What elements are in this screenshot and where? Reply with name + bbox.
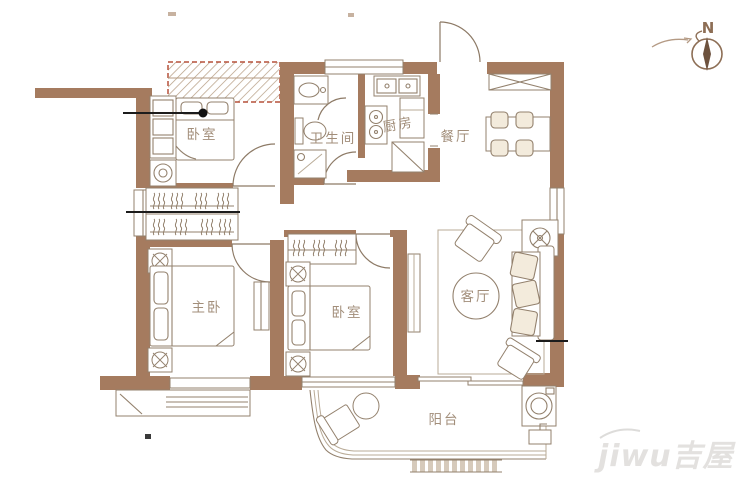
- dresser: [254, 282, 269, 330]
- hatched-area: [168, 62, 280, 102]
- floor-plan-page: 卧室 卫生间 厨房 餐厅 主卧 卧室 客厅 阳台 N jiwu吉屋: [0, 0, 740, 493]
- window-bedroom-middle: [302, 377, 395, 387]
- balcony-table: [353, 393, 379, 419]
- bathroom-fixtures: [294, 76, 328, 178]
- top-tick-mark: [168, 12, 176, 16]
- watermark: jiwu吉屋: [594, 430, 737, 474]
- balcony-items: [310, 386, 556, 472]
- room-label-living-room: 客厅: [461, 288, 492, 305]
- compass: N: [652, 19, 722, 71]
- sliding-door-balcony: [418, 377, 523, 385]
- sink: [294, 76, 328, 104]
- wardrobe: [288, 234, 356, 264]
- north-label: N: [702, 19, 715, 37]
- dining-table: [486, 112, 550, 156]
- floor-plan: 卧室 卫生间 厨房 餐厅 主卧 卧室 客厅 阳台 N jiwu吉屋: [0, 0, 740, 493]
- compass-needle: [703, 37, 711, 71]
- top-tick-mark: [348, 13, 354, 17]
- nightstand: [286, 352, 310, 376]
- washing-machine: [522, 386, 556, 426]
- room-label-bedroom-top: 卧室: [187, 126, 218, 143]
- master-bedroom-door: [232, 244, 270, 282]
- watermark-logo: jiwu吉屋: [594, 439, 737, 474]
- kitchen-door-ticks: [430, 114, 438, 146]
- dining-furniture: [486, 74, 551, 156]
- compass-swoosh: [652, 39, 688, 47]
- wardrobe: [150, 96, 176, 158]
- nightstand: [286, 262, 310, 286]
- mop-sink: [529, 424, 551, 444]
- armchair: [451, 214, 503, 265]
- small-dot-mark: [145, 434, 151, 439]
- window-top-kitchen: [325, 60, 403, 74]
- entry-door: [440, 22, 480, 62]
- fridge: [392, 142, 424, 172]
- sofa: [510, 246, 554, 340]
- shoe-cabinet: [489, 74, 551, 90]
- bedroom-top-door: [233, 144, 275, 186]
- nightstand: [150, 160, 176, 186]
- walkthrough-closet: [146, 188, 238, 240]
- kitchen-sink: [374, 76, 420, 96]
- watermark-swoosh: [600, 430, 640, 438]
- room-label-balcony: 阳台: [429, 412, 460, 428]
- room-label-dining: 餐厅: [441, 129, 472, 145]
- bedroom-middle-door: [356, 234, 390, 268]
- room-label-master-bedroom: 主卧: [192, 300, 223, 316]
- shower: [294, 150, 326, 178]
- room-label-bathroom: 卫生间: [310, 131, 357, 147]
- tv-cabinet: [408, 254, 420, 332]
- room-label-bedroom-middle: 卧室: [332, 304, 363, 321]
- nightstand: [148, 348, 172, 372]
